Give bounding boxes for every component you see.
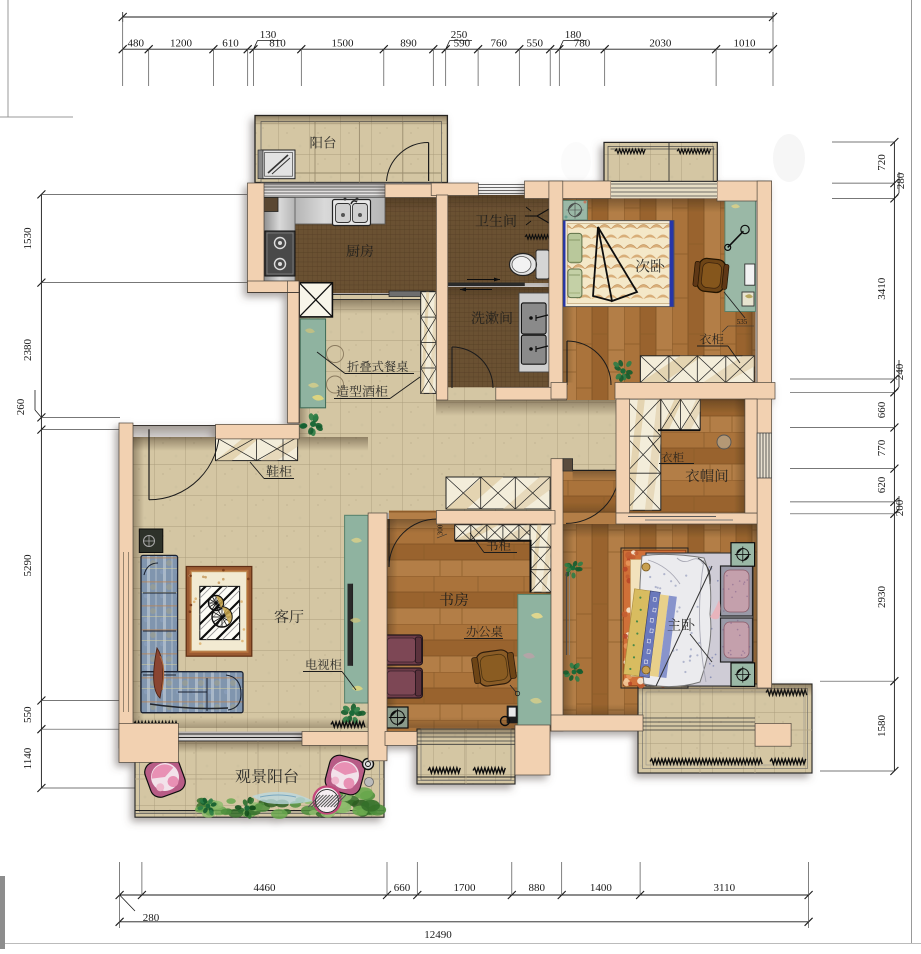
svg-text:1530: 1530 bbox=[22, 227, 34, 250]
svg-text:3410: 3410 bbox=[876, 277, 888, 300]
svg-text:260: 260 bbox=[15, 398, 27, 415]
svg-text:180: 180 bbox=[565, 29, 582, 41]
svg-text:250: 250 bbox=[451, 29, 468, 41]
svg-text:1010: 1010 bbox=[734, 38, 757, 50]
svg-text:280: 280 bbox=[895, 172, 907, 189]
svg-text:4460: 4460 bbox=[254, 882, 277, 894]
svg-text:130: 130 bbox=[260, 29, 277, 41]
svg-text:720: 720 bbox=[876, 154, 888, 171]
svg-text:1200: 1200 bbox=[170, 38, 193, 50]
svg-text:480: 480 bbox=[127, 38, 144, 50]
svg-text:5290: 5290 bbox=[22, 554, 34, 577]
svg-text:1700: 1700 bbox=[454, 882, 477, 894]
svg-text:1400: 1400 bbox=[590, 882, 613, 894]
svg-text:1580: 1580 bbox=[876, 715, 888, 738]
svg-text:550: 550 bbox=[526, 38, 543, 50]
svg-text:1500: 1500 bbox=[332, 38, 355, 50]
svg-text:1140: 1140 bbox=[22, 747, 34, 769]
svg-text:12490: 12490 bbox=[424, 929, 452, 941]
svg-text:660: 660 bbox=[876, 401, 888, 418]
svg-text:660: 660 bbox=[394, 882, 411, 894]
svg-text:200: 200 bbox=[894, 499, 906, 516]
svg-text:3110: 3110 bbox=[714, 882, 736, 894]
svg-text:2030: 2030 bbox=[649, 38, 672, 50]
svg-text:890: 890 bbox=[400, 38, 417, 50]
svg-text:550: 550 bbox=[22, 706, 34, 723]
svg-text:610: 610 bbox=[222, 38, 239, 50]
svg-text:880: 880 bbox=[528, 882, 545, 894]
svg-text:300: 300 bbox=[437, 524, 445, 535]
svg-text:2930: 2930 bbox=[876, 586, 888, 609]
svg-text:760: 760 bbox=[490, 38, 507, 50]
svg-text:770: 770 bbox=[876, 439, 888, 456]
svg-text:240: 240 bbox=[894, 363, 906, 380]
svg-text:620: 620 bbox=[876, 476, 888, 493]
svg-text:2380: 2380 bbox=[22, 339, 34, 362]
svg-text:535: 535 bbox=[737, 318, 748, 326]
